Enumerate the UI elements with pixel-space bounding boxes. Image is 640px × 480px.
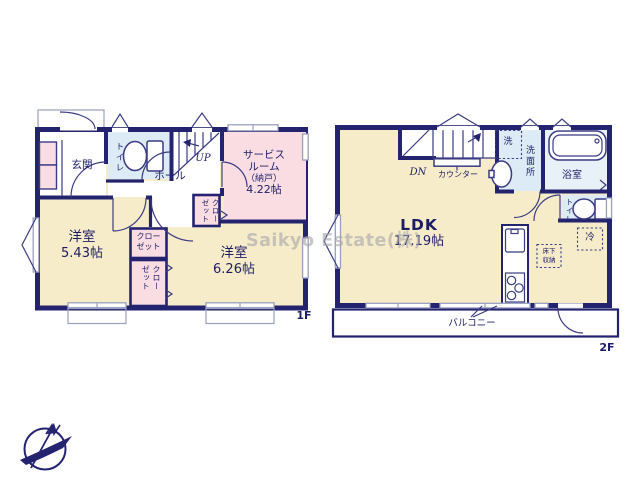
toilet-2f-label: トイレ (562, 196, 574, 226)
toilet-1f-label: トイレ (111, 135, 124, 181)
service-room-size: 4.22帖 (226, 184, 302, 197)
floor2-label: 2F (595, 342, 619, 355)
western-room1-name: 洋室 (42, 230, 122, 246)
hall-label: ホール (146, 170, 194, 182)
western-room2-size: 6.26帖 (194, 262, 274, 277)
balcony-label: バルコニー (437, 318, 507, 329)
stairs-dn-label: DN (405, 167, 431, 179)
closet-top-label: クローゼット (135, 232, 162, 253)
stairs-up-label: UP (190, 153, 216, 165)
service-room-label: サービス ルーム （納戸） 4.22帖 (226, 149, 302, 197)
kitchen-icon-2f (502, 225, 528, 305)
floorplan-page: 玄関 トイレ ホール UP サービス ルーム （納戸） 4.22帖 洋室 5.4… (0, 0, 640, 480)
service-room-name-line1: サービス (226, 149, 302, 161)
toilet-icon-1f (124, 141, 164, 171)
entrance-label: 玄関 (58, 159, 106, 171)
bathroom-label: 浴室 (550, 170, 594, 182)
floor1-plan (22, 110, 308, 324)
underfloor-storage-label: 床下収納 (541, 247, 557, 266)
service-room-name-line2: ルーム (226, 161, 302, 173)
washroom-label: 洗面所 (521, 137, 535, 185)
watermark: Saikyo Estate(株) (246, 227, 422, 252)
western-room1-label: 洋室 5.43帖 (42, 230, 122, 261)
counter-label: カウンター (430, 170, 486, 179)
western-room1-size: 5.43帖 (42, 246, 122, 261)
compass-north-icon (20, 423, 72, 470)
floor1-label: 1F (292, 310, 316, 323)
closet-bottom-label: クローゼット (136, 264, 161, 291)
closet-hall-label: クローゼット (195, 197, 220, 224)
refrigerator-label: 冷 (580, 232, 600, 243)
washer-label: 洗 (498, 137, 518, 148)
